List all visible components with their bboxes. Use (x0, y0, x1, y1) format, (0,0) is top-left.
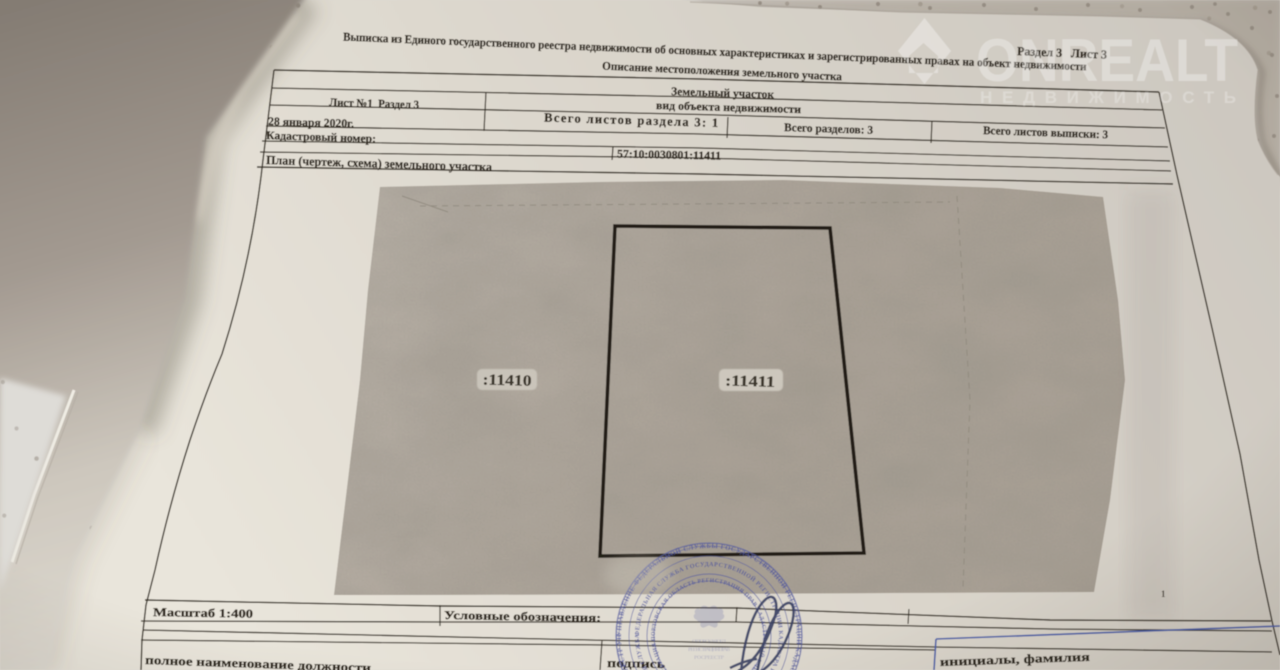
svg-text:ONREALT: ONREALT (976, 27, 1238, 94)
